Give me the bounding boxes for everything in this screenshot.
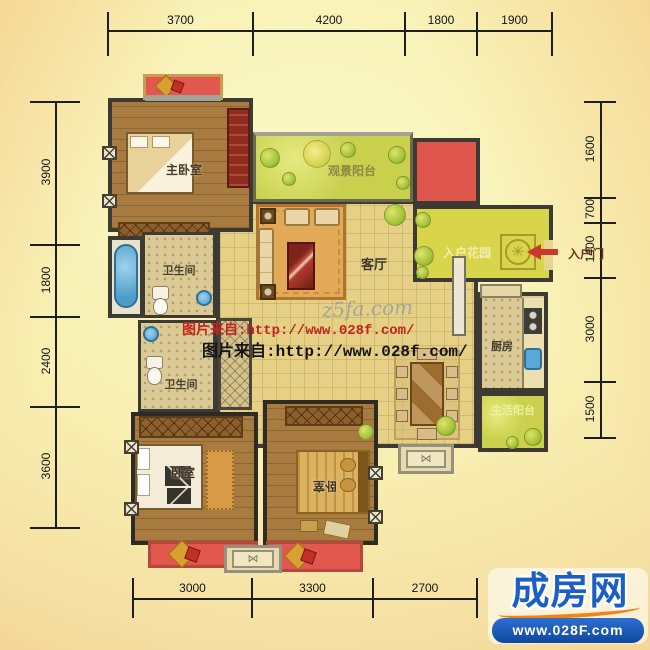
window-box-icon [368,510,383,524]
dining-chair [396,366,408,378]
dim-tick [584,437,616,439]
coffee-table [287,242,315,290]
wardrobe-red [227,108,250,188]
watermark-black: 图片来自:http://www.028f.com/ [202,337,522,361]
dim-label-left-4: 3600 [39,438,53,494]
entrance-door-label: 入户门 [560,245,612,262]
garden-medallion-icon: ✳ [511,242,524,262]
bathroom-upper-label: 卫生间 [146,262,212,278]
watermark-red: 图片来自:http://www.028f.com/ [182,319,502,339]
plant-icon [506,436,519,449]
kitchen-sink [524,348,542,370]
ac-unit-bottom: ⋈ [224,545,282,573]
dim-label-left-2: 1800 [39,252,53,308]
kitchen-cabinet [480,284,522,298]
living-room-label: 客厅 [352,254,396,273]
window-box-icon [102,194,117,208]
ac-unit-right: ⋈ [398,444,454,474]
pillow [152,136,170,148]
dining-chair [396,410,408,422]
sink [196,290,212,306]
lamp-table [260,284,276,300]
plant-icon [415,212,431,228]
dim-label-bottom-1: 3000 [133,581,252,595]
plant-icon [340,142,356,158]
dim-label-top-2: 4200 [253,13,405,27]
red-block [413,138,480,205]
window-box-icon [368,466,383,480]
viewing-balcony-label: 观景阳台 [300,162,404,179]
armchair [284,208,310,226]
bathtub [114,244,138,308]
pillow [340,458,356,472]
rug [206,450,234,510]
plant-icon [384,204,406,226]
floorplan-image: 3700 4200 1800 1900 3000 3300 2700 3900 … [0,0,650,650]
dining-chair [446,366,458,378]
window-box-icon [102,146,117,160]
dim-label-top-4: 1900 [477,13,552,27]
dim-line-bottom [133,598,477,600]
entrance-arrow-shaft [540,249,558,255]
ac-icon: ⋈ [406,450,446,468]
dining-chair [446,388,458,400]
dim-tick [30,316,80,318]
window-segment [145,95,221,101]
dim-tick [30,527,80,529]
headboard [358,452,368,512]
life-balcony-label: 生活阳台 [480,402,546,418]
toilet [153,298,168,315]
plant-icon [260,148,280,168]
wardrobe-strip [139,416,243,438]
plant-icon [358,424,374,440]
entrance-arrow-icon [527,244,541,260]
dining-table [410,362,444,426]
plant-icon [282,172,296,186]
dining-chair [417,428,437,440]
dim-line-left [55,102,57,528]
dim-label-left-1: 3900 [39,144,53,200]
dim-label-right-1: 1600 [583,121,597,177]
ac-icon: ⋈ [232,550,274,568]
dining-chair [396,388,408,400]
stove [524,308,542,334]
dim-label-bottom-3: 2700 [373,581,477,595]
entrance-garden-label: 入户花园 [432,244,502,261]
dim-label-right-4: 3000 [583,301,597,357]
dim-label-right-5: 1500 [583,381,597,437]
quilt [167,488,191,504]
dim-label-bottom-2: 3300 [252,581,373,595]
lamp-table [260,208,276,224]
dim-label-top-1: 3700 [108,13,253,27]
pillow [130,136,148,148]
logo-url-bar: www.028F.com [492,618,644,643]
armchair [314,208,340,226]
dim-tick [584,277,616,279]
master-bedroom-label: 主卧室 [145,161,223,178]
window-box-icon [124,502,139,516]
window-box-icon [124,440,139,454]
dim-tick [30,406,80,408]
bedroom-right-label: 卧室 [300,478,350,495]
entrance-doorway [544,240,553,270]
stool [300,520,318,532]
plant-icon [524,428,542,446]
dim-label-left-3: 2400 [39,333,53,389]
pillow [137,474,150,496]
dim-tick [30,244,80,246]
dim-line-top [108,30,552,32]
plant-icon [416,266,429,279]
dim-label-top-3: 1800 [405,13,477,27]
dim-tick [30,101,80,103]
wardrobe-strip [285,406,363,426]
dim-line-right [600,102,602,438]
bedroom-left-label: 卧室 [158,464,208,481]
dim-tick [584,101,616,103]
plant-icon [414,246,434,266]
plant-icon [436,416,456,436]
sink [143,326,159,342]
bathroom-lower-label: 卫生间 [148,376,214,392]
sofa [258,228,274,290]
